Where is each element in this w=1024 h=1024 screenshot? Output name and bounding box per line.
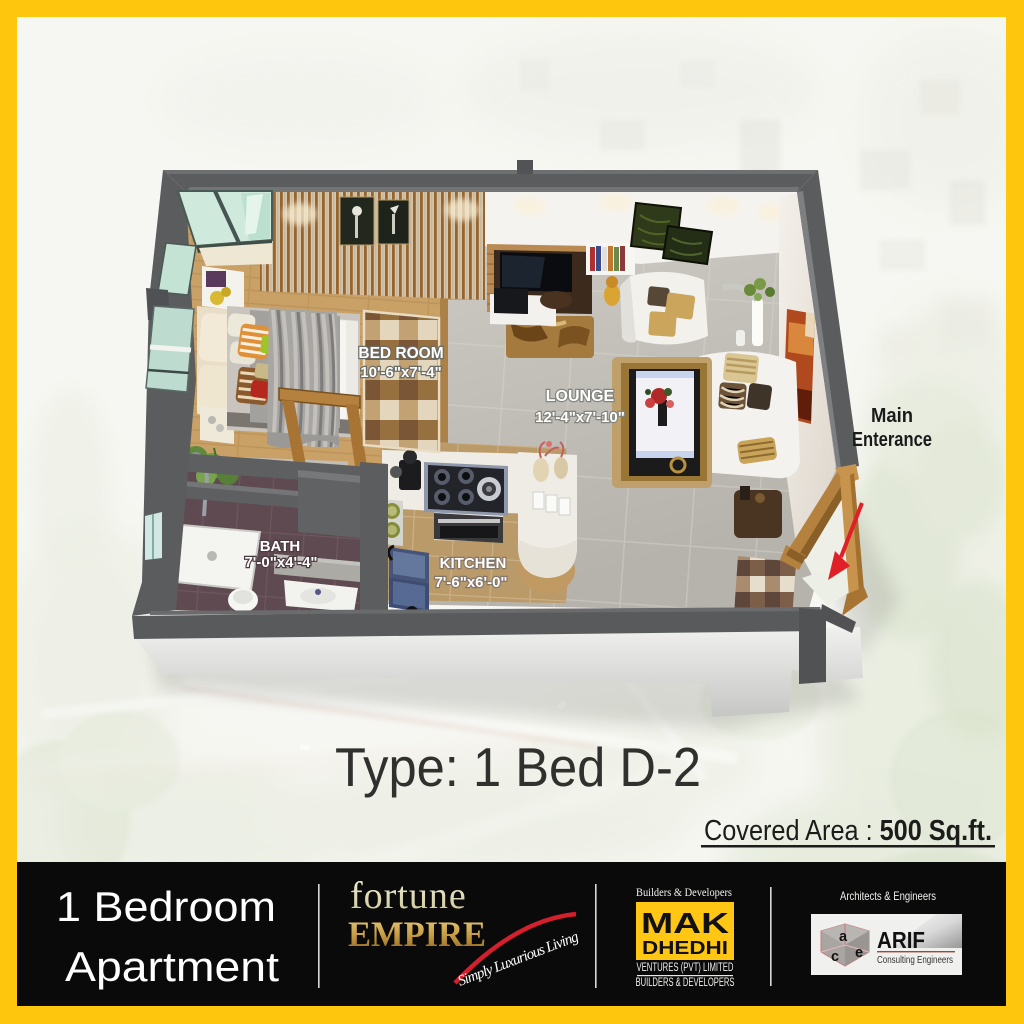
svg-text:DHEDHI: DHEDHI bbox=[642, 938, 728, 958]
svg-text:1 Bedroom: 1 Bedroom bbox=[56, 883, 276, 930]
svg-text:c: c bbox=[831, 949, 839, 965]
svg-text:LOUNGE: LOUNGE bbox=[546, 388, 615, 405]
svg-text:KITCHEN: KITCHEN bbox=[440, 555, 507, 572]
svg-text:BUILDERS & DEVELOPERS: BUILDERS & DEVELOPERS bbox=[636, 977, 735, 989]
svg-text:Architects & Engineers: Architects & Engineers bbox=[840, 889, 936, 903]
svg-text:Builders & Developers: Builders & Developers bbox=[636, 885, 732, 899]
svg-text:Enterance: Enterance bbox=[852, 429, 932, 451]
svg-text:VENTURES (PVT) LIMITED: VENTURES (PVT) LIMITED bbox=[637, 962, 734, 974]
svg-text:e: e bbox=[855, 945, 863, 961]
svg-text:Main: Main bbox=[871, 405, 913, 427]
svg-text:EMPIRE: EMPIRE bbox=[348, 914, 486, 954]
svg-text:BED ROOM: BED ROOM bbox=[358, 345, 443, 362]
svg-text:7'-0"x4'-4": 7'-0"x4'-4" bbox=[244, 554, 317, 571]
svg-text:MAK: MAK bbox=[641, 908, 729, 940]
svg-text:Covered Area : 500 Sq.ft.: Covered Area : 500 Sq.ft. bbox=[704, 815, 992, 847]
svg-text:10'-6"x7'-4": 10'-6"x7'-4" bbox=[360, 364, 441, 381]
svg-text:Type: 1 Bed D-2: Type: 1 Bed D-2 bbox=[335, 736, 701, 798]
svg-text:fortune: fortune bbox=[350, 875, 467, 917]
svg-text:Consulting Engineers: Consulting Engineers bbox=[877, 954, 953, 966]
svg-text:12'-4"x7'-10": 12'-4"x7'-10" bbox=[535, 409, 625, 426]
svg-text:Apartment: Apartment bbox=[65, 943, 279, 990]
svg-text:BATH: BATH bbox=[260, 538, 301, 555]
svg-text:ARIF: ARIF bbox=[877, 927, 925, 953]
svg-text:a: a bbox=[839, 929, 848, 945]
svg-text:7'-6"x6'-0": 7'-6"x6'-0" bbox=[434, 574, 507, 591]
